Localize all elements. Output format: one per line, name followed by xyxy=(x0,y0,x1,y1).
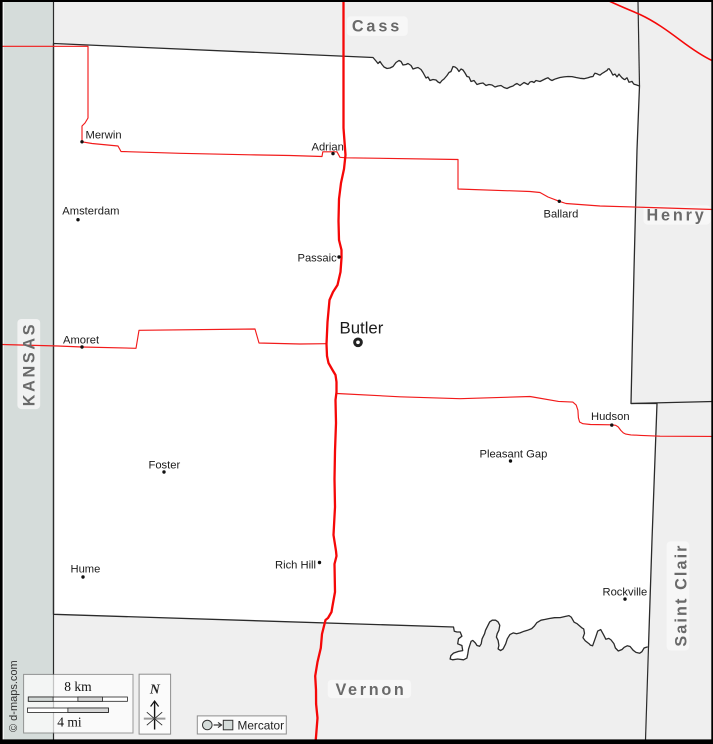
svg-text:Amsterdam: Amsterdam xyxy=(62,206,119,218)
svg-text:N: N xyxy=(149,682,161,697)
svg-text:Ballard: Ballard xyxy=(544,208,579,220)
svg-text:4 mi: 4 mi xyxy=(57,715,82,730)
svg-text:Henry: Henry xyxy=(647,206,707,224)
svg-text:8 km: 8 km xyxy=(64,679,92,694)
svg-text:Vernon: Vernon xyxy=(335,681,406,699)
svg-text:Saint Clair: Saint Clair xyxy=(672,543,690,646)
svg-text:Rockville: Rockville xyxy=(603,586,648,598)
svg-text:Adrian: Adrian xyxy=(312,142,344,154)
svg-text:Amoret: Amoret xyxy=(63,334,100,346)
svg-text:Merwin: Merwin xyxy=(86,130,122,142)
svg-text:© d-maps.com: © d-maps.com xyxy=(8,660,20,732)
svg-text:Mercator: Mercator xyxy=(238,718,285,732)
svg-text:Foster: Foster xyxy=(149,459,181,471)
svg-text:Hudson: Hudson xyxy=(591,411,630,423)
svg-text:Pleasant Gap: Pleasant Gap xyxy=(480,448,548,460)
svg-text:Butler: Butler xyxy=(340,319,384,338)
svg-text:Cass: Cass xyxy=(352,18,402,36)
svg-text:Rich Hill: Rich Hill xyxy=(275,559,316,571)
svg-text:KANSAS: KANSAS xyxy=(21,322,39,407)
svg-text:Passaic: Passaic xyxy=(298,252,338,264)
svg-text:Hume: Hume xyxy=(71,563,101,575)
